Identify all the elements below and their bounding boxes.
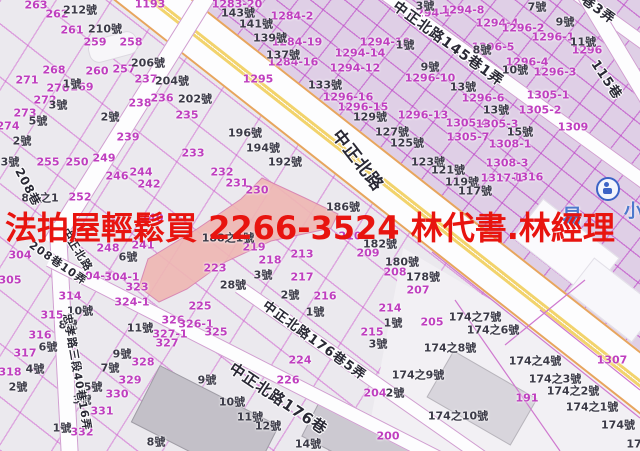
marker-head <box>604 182 609 187</box>
house-number: 133號 <box>308 80 342 91</box>
house-number: 174之9號 <box>392 370 445 381</box>
parcel-number: 317 <box>14 348 37 359</box>
parcel-number: 191 <box>516 393 539 404</box>
parcel-number: 1296-10 <box>405 73 456 84</box>
house-number: 9號 <box>556 17 575 28</box>
road-name: 巷3弄 <box>579 0 617 26</box>
parcel-number: 330 <box>106 389 129 400</box>
parcel-number: 1284-2 <box>271 11 314 22</box>
parcel-number: 249 <box>93 153 116 164</box>
house-number: 9號 <box>421 62 440 73</box>
parcel-number: 259 <box>84 37 107 48</box>
house-number: 14號 <box>295 439 321 450</box>
parcel-number: 1305-7 <box>447 132 490 143</box>
house-number: 174之2號 <box>547 386 600 397</box>
house-number: 28號 <box>220 280 246 291</box>
parcel-number: 246 <box>106 171 129 182</box>
house-number: 11號 <box>570 37 596 48</box>
parcel-number: 230 <box>246 185 269 196</box>
parcel-number: 327 <box>156 338 179 349</box>
house-number: 8號 <box>147 437 166 448</box>
house-number: 10號 <box>219 397 245 408</box>
parcel-number: 244 <box>130 167 153 178</box>
house-number: 5號 <box>29 116 48 127</box>
parcel-number: 328 <box>132 357 155 368</box>
house-number: 174之10號 <box>428 411 488 422</box>
house-number: 1號 <box>63 79 82 90</box>
parcel-number: 1308-1 <box>489 139 532 150</box>
house-number: 3號 <box>254 270 273 281</box>
parcel-number: 1307 <box>597 355 628 366</box>
parcel-number: 239 <box>117 132 140 143</box>
parcel-number: 261 <box>61 25 84 36</box>
parcel-number: 217 <box>291 272 314 283</box>
house-number: 174號 <box>601 420 635 431</box>
parcel-number: 200 <box>377 431 400 442</box>
house-number: 125號 <box>390 138 424 149</box>
map-text: 小 <box>624 203 640 221</box>
marker-body <box>603 188 612 194</box>
parcel-number: 242 <box>138 179 161 190</box>
parcel-number: 1296-2 <box>502 23 545 34</box>
house-number: 10號 <box>502 65 528 76</box>
house-number: 2號 <box>101 112 120 123</box>
map-canvas[interactable]: 1193263262261259258268260257237238236235… <box>0 0 640 451</box>
parcel-number: 252 <box>69 192 92 203</box>
parcel-number: 1296-3 <box>534 67 577 78</box>
parcel-number: 1317-1 <box>481 173 524 184</box>
house-number: 2號 <box>9 382 28 393</box>
person-marker-icon[interactable] <box>596 177 620 201</box>
house-number: 174之1號 <box>566 402 619 413</box>
parcel-number: 213 <box>291 249 314 260</box>
house-number: 6號 <box>39 342 58 353</box>
house-number: 1號 <box>306 307 325 318</box>
house-number: 13號 <box>483 105 509 116</box>
parcel-number: 1193 <box>135 0 166 10</box>
parcel-number: 324-1 <box>114 297 149 308</box>
house-number: 141號 <box>239 19 273 30</box>
parcel-number: 304 <box>9 250 32 261</box>
parcel-number: 238 <box>129 98 152 109</box>
house-number: 13號 <box>450 82 476 93</box>
parcel-number: 316 <box>29 330 52 341</box>
parcel-number: 314 <box>59 291 82 302</box>
house-number: 174之6號 <box>467 325 520 336</box>
house-number: 204號 <box>155 76 189 87</box>
house-number: 2號 <box>13 136 32 147</box>
house-number: 129號 <box>353 112 387 123</box>
house-number: 3號 <box>1 157 20 168</box>
parcel-number: 204 <box>364 388 387 399</box>
parcel-number: 1296-13 <box>398 110 449 121</box>
parcel-number: 223 <box>204 263 227 274</box>
house-number: 7號 <box>101 363 120 374</box>
house-number: 117號 <box>458 186 492 197</box>
parcel-number: 1294-14 <box>335 48 386 59</box>
house-number: 1號 <box>53 423 72 434</box>
parcel-number: 225 <box>189 301 212 312</box>
parcel-number: 323 <box>126 282 149 293</box>
parcel-number: 305 <box>0 275 21 286</box>
parcel-number: 329 <box>119 375 142 386</box>
parcel-number: 1305-1 <box>527 90 570 101</box>
parcel-number: 214 <box>379 303 402 314</box>
parcel-number: 255 <box>37 157 60 168</box>
house-number: 9號 <box>113 349 132 360</box>
parcel-number: 1294-12 <box>330 63 381 74</box>
house-number: 17 <box>626 439 640 450</box>
house-number: 6號 <box>119 252 138 263</box>
parcel-number: 1309 <box>558 122 589 133</box>
house-number: 3號 <box>416 1 435 12</box>
house-number: 4號 <box>26 364 45 375</box>
parcel-number: 268 <box>43 65 66 76</box>
parcel-number: 207 <box>407 285 430 296</box>
house-number: 1號 <box>396 40 415 51</box>
parcel-number: 216 <box>314 291 337 302</box>
parcel-number: 218 <box>259 255 282 266</box>
house-number: 2號 <box>281 290 300 301</box>
house-number: 210號 <box>88 24 122 35</box>
parcel-number: 224 <box>289 355 312 366</box>
parcel-number: 226 <box>277 375 300 386</box>
house-number: 121號 <box>431 165 465 176</box>
parcel-number: 1308-3 <box>486 158 529 169</box>
house-number: 202號 <box>178 94 212 105</box>
ad-overlay-text: 法拍屋輕鬆買 2266-3524 林代書.林經理 <box>5 203 615 249</box>
parcel-number: 233 <box>182 148 205 159</box>
house-number: 7號 <box>528 2 547 13</box>
house-number: 1號 <box>384 318 403 329</box>
house-number: 206號 <box>131 58 165 69</box>
parcel-number: 1305-2 <box>519 105 562 116</box>
parcel-number: 318 <box>0 367 21 378</box>
road-name: 208巷 <box>13 166 43 208</box>
house-number: 3號 <box>369 339 388 350</box>
house-number: 192號 <box>268 157 302 168</box>
parcel-number: 205 <box>421 317 444 328</box>
parcel-number: 274 <box>0 121 19 132</box>
house-number: 3號 <box>49 100 68 111</box>
parcel-number: 263 <box>25 0 48 11</box>
house-number: 12號 <box>255 421 281 432</box>
house-number: 196號 <box>228 128 262 139</box>
house-number: 174之7號 <box>449 312 502 323</box>
house-number: 194號 <box>246 143 280 154</box>
house-number: 212號 <box>63 5 97 16</box>
parcel-number: 1296-6 <box>462 93 505 104</box>
house-number: 139號 <box>253 33 287 44</box>
house-number: 15號 <box>507 127 533 138</box>
house-number: 178號 <box>406 272 440 283</box>
parcel-number: 1294-8 <box>442 5 485 16</box>
road-name: 115巷 <box>588 58 623 102</box>
house-number: 180號 <box>385 257 419 268</box>
parcel-number: 271 <box>16 75 39 86</box>
house-number: 9號 <box>198 375 217 386</box>
parcel-number: 250 <box>66 157 89 168</box>
parcel-number: 215 <box>361 327 384 338</box>
house-number: 137號 <box>266 50 300 61</box>
house-number: 2號 <box>386 388 405 399</box>
parcel-number: 236 <box>151 93 174 104</box>
parcel-number: 235 <box>176 110 199 121</box>
house-number: 174之3號 <box>529 374 582 385</box>
parcel-number: 325 <box>205 327 228 338</box>
parcel-number: 258 <box>120 37 143 48</box>
parcel-number: 260 <box>86 66 109 77</box>
house-number: 174之4號 <box>509 356 562 367</box>
parcel-number: 331 <box>91 406 114 417</box>
house-number: 11號 <box>127 323 153 334</box>
house-number: 174之8號 <box>424 343 477 354</box>
parcel-number: 1295 <box>243 74 274 85</box>
